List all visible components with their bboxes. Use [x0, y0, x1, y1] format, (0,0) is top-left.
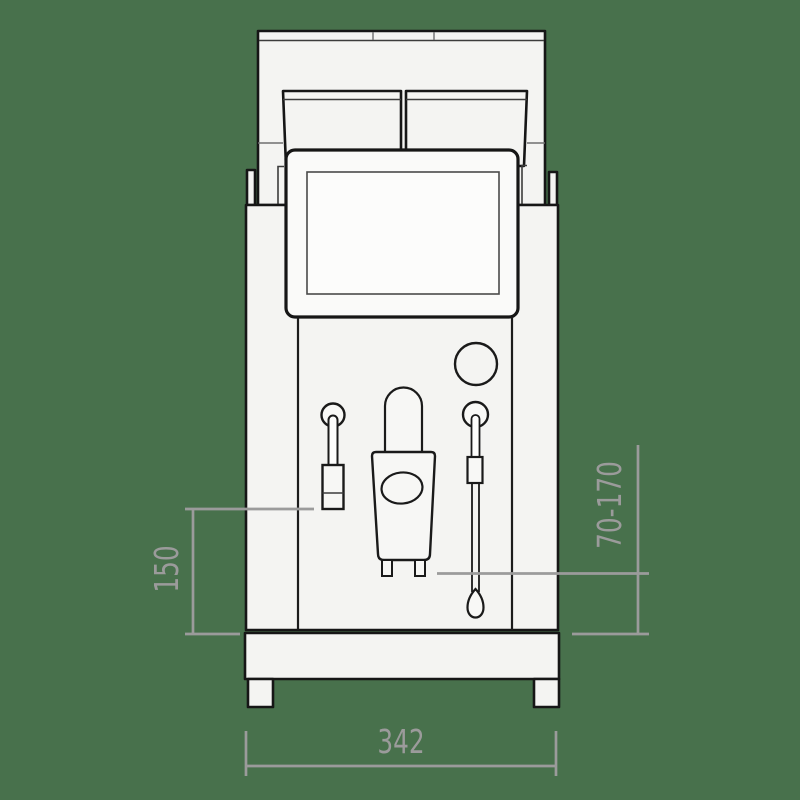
steam-wand-grip [468, 457, 483, 483]
base [245, 633, 559, 707]
coffee-spout-outlet-right [415, 560, 425, 576]
drip-tray-base [245, 633, 559, 679]
foot-right [534, 679, 559, 707]
coffee-machine-front-view: 150 70-170 342 [0, 0, 800, 800]
left-wand-tube [329, 416, 338, 467]
left-wand-nozzle [323, 465, 344, 509]
foot-left [248, 679, 273, 707]
dimension-label-342: 342 [377, 722, 424, 760]
touchscreen-display [307, 172, 499, 294]
coffee-spout-body [372, 452, 435, 560]
dimension-base-width: 342 [246, 722, 556, 776]
steam-wand-upper-tube [472, 415, 480, 458]
side-post-right [549, 172, 557, 205]
coffee-spout-arm [385, 388, 422, 456]
dimension-label-150: 150 [148, 545, 186, 592]
touchscreen [286, 150, 518, 317]
coffee-spout-outlet-left [382, 560, 392, 576]
side-post-left [247, 170, 255, 205]
technical-drawing-canvas: 150 70-170 342 [0, 0, 800, 800]
dimension-label-70-170: 70-170 [591, 461, 629, 549]
